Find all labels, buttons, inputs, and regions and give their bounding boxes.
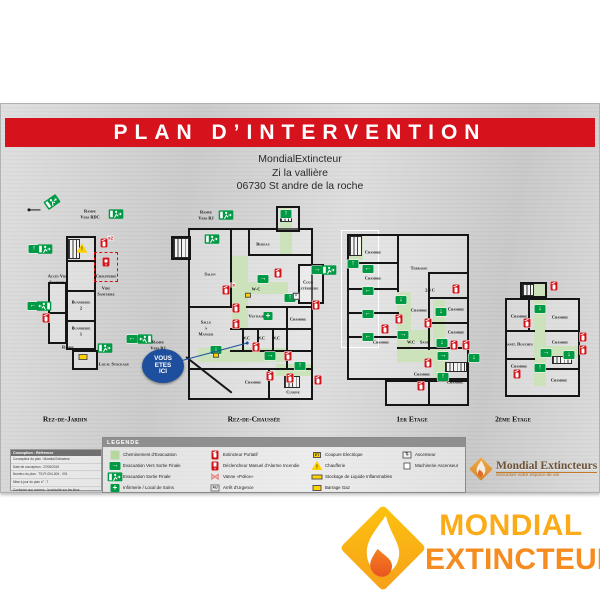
legend-item: Extincteur Portatif [207,449,300,460]
exit-arrow-sign-icon: ↓ [396,296,407,304]
site-address: MondialExtincteur Zi la vallière 06730 S… [0,153,600,194]
room-label: Rampe [152,340,164,345]
police-valve-icon: ⋈ [211,471,220,482]
floor-plan-2eme-etage: ChambreChambreChambreSanit. DouchesChamb… [470,238,595,414]
legend-item: Evacuation Sortie Finale [107,471,181,482]
brand-footer: MONDIAL EXTINCTEUR [0,495,600,600]
room-label: Rampe [200,210,212,215]
stairs [445,362,467,372]
inner-wall [545,368,580,370]
legend-item: AUArrêt d'Urgence [207,482,300,493]
legend-item-label: Ascenseur [415,452,436,457]
legend-title: LEGENDE [103,438,465,447]
metal-plate: PLAN D’INTERVENTION MondialExtincteur Zi… [0,103,600,493]
extinguisher-icon [463,341,470,350]
room-walls [72,350,98,370]
exit-arrow-sign-icon: ← [127,335,138,343]
exit-arrow-sign-icon: → [541,349,552,357]
first-aid-icon: + [264,312,273,320]
legend-column: ETCoupure Electrique!ChaufferieStockage … [309,449,392,493]
floor-plan-rez-de-chaussee: RampeVers RJBureauSalonW-CCourExtérieure… [168,198,336,410]
inner-wall [545,330,580,332]
room-label: W.C [242,336,250,341]
count-badge: x2 [108,236,114,241]
extinguisher-icon [313,301,320,310]
room-label: W.C [272,336,280,341]
extinguisher-icon [514,370,521,379]
legend: LEGENDE Cheminement d'Evacuation→Evacuat… [102,437,466,493]
inner-wall [428,272,430,350]
room-label: Chambre [373,340,390,345]
extinguisher-icon: 2x [223,286,230,295]
legend-icon-wrap [107,471,123,482]
fire-alarm-call-point-icon [212,461,219,470]
legend-item-label: Cheminement d'Evacuation [123,452,177,457]
access-point-icon [30,209,41,210]
floor-caption-1er-etage: 1er Etage [396,415,427,424]
extinguisher-icon [285,352,292,361]
legend-item-label: Barrage Gaz [325,485,350,490]
room-label: Vide [102,286,110,291]
brand-flame-diamond-icon [338,503,428,593]
extinguisher-icon [233,320,240,329]
plate-maker-name: Mondial Extincteurs [496,460,597,472]
conception-info-line: Conforme aux normes : la sécurité sur le… [11,487,101,495]
inner-wall [66,320,96,322]
police-valve-window-icon: × [293,293,300,300]
legend-item: +Infirmerie / Local de Soins [107,482,181,493]
inner-wall [428,297,469,299]
emergency-exit-sign-icon [108,472,123,482]
evacuation-path-icon [111,450,120,459]
first-aid-icon: + [111,484,120,492]
legend-item-label: Déclencheur Manuel d'Alarme Incendie [223,463,300,468]
room-label: Chambre [290,317,307,322]
room-label: Buanderie [72,300,91,305]
legend-column: Extincteur PortatifDéclencheur Manuel d'… [207,449,300,493]
emergency-exit-sign-icon [109,209,124,219]
extinguisher-icon [396,315,403,324]
legend-icon-wrap: ⇅ [399,449,415,460]
exit-arrow-sign-icon: ↓ [437,339,448,347]
emergency-exit-sign-icon [37,301,52,311]
room-label: Sanitaire [49,280,66,285]
legend-item: ETCoupure Electrique [309,449,392,460]
exit-arrow-sign-icon: ↓ [564,351,575,359]
room-label: Vers RJ [198,216,213,221]
legend-item: Stockage de Liquide Inflammables [309,471,392,482]
legend-item-label: Stockage de Liquide Inflammables [325,474,392,479]
conception-info-line: Date de conception : 27/06/2019 [11,464,101,472]
extinguisher-icon [267,372,274,381]
brand-name-line1: MONDIAL [425,509,597,543]
exit-arrow-sign-icon: ↑ [295,362,306,370]
emergency-exit-sign-icon [205,234,220,244]
hazard-triangle-icon: ! [312,461,323,471]
legend-item: Barrage Gaz [309,482,392,493]
inner-wall [246,306,313,308]
room-label: W.C [407,340,415,345]
extinguisher-icon [580,333,587,342]
gas-barrier-icon [313,485,322,491]
exit-right-icon: → [110,462,121,470]
extinguisher-icon [451,341,458,350]
flammable-storage-icon [312,474,323,479]
room-label: Local Stockage [99,362,129,367]
exit-arrow-sign-icon: → [265,352,276,360]
room-label: Chambre [365,276,382,281]
legend-icon-wrap [107,449,123,460]
inner-wall [188,306,232,308]
extinguisher-icon [453,285,460,294]
conception-info-box: Conception : Référence Concepteur du pla… [10,449,102,491]
stairs [349,236,362,256]
legend-item-label: Evacuation Sortie Finale [123,474,171,479]
legend-item-label: Evacuation Vers Sortie Finale [123,463,181,468]
legend-item: ⇅Ascenseur [399,449,458,460]
floor-caption-2eme-etage: 2ème Etage [495,415,531,424]
address-line-2: Zi la vallière [0,167,600,181]
conception-info-line: Mise à jour du plan n° : 7 [11,479,101,487]
extinguisher-icon [425,359,432,368]
room-label: Salle [201,320,212,325]
room-label: Manger [199,332,214,337]
inner-wall [428,272,469,274]
exit-arrow-sign-icon: ↓ [436,308,447,316]
room-label: Chambre [448,307,465,312]
extinguisher-icon [315,376,322,385]
legend-item: !Chaufferie [309,460,392,471]
address-line-3: 06730 St andre de la roche [0,180,600,194]
elevator-icon: ⇅ [403,451,412,458]
inner-wall [66,290,96,292]
extinguisher-icon [382,325,389,334]
room-label: Chambre [447,380,464,385]
gas-barrier-icon [79,354,88,360]
inner-wall [248,228,250,256]
room-label: Chambre [245,380,262,385]
legend-icon-wrap [207,449,223,460]
room-label: Sanit [420,340,430,345]
legend-item-label: Vanne «Police» [223,474,253,479]
room-label: Chambre [552,315,569,320]
room-label: Accès Vide [48,274,69,279]
room-label: Extérieure [298,286,319,291]
conception-info-lines: Concepteur du plan : Mondial ExtincteurD… [11,456,101,495]
room-label: W.C [257,336,265,341]
exit-arrow-sign-icon: → [438,352,449,360]
plate-maker-tagline: Sécuriser votre espace de vie [496,472,597,479]
legend-item: ⋈Vanne «Police» [207,471,300,482]
elevator-machinery-icon [404,462,411,469]
legend-column: ⇅AscenseurMachinerie Ascenseur [399,449,458,471]
room-label: Chambre [448,330,465,335]
exit-arrow-sign-icon: ↓ [535,305,546,313]
exit-arrow-sign-icon: ↑ [281,210,292,218]
legend-item-label: Machinerie Ascenseur [415,463,458,468]
count-badge: 2x [230,283,236,288]
exit-arrow-sign-icon: → [398,331,409,339]
fire-alarm-call-point-icon [103,258,110,267]
you-are-here-label: VOUS ETES ICI [152,356,174,376]
exit-arrow-sign-icon: → [258,275,269,283]
inner-wall [505,330,535,332]
conception-info-line: Numéro du plan : TS-PI-004-004 - V01 [11,471,101,479]
emergency-exit-sign-icon [38,244,53,254]
inner-wall [397,347,469,349]
legend-icon-wrap: + [107,482,123,493]
room-label: Cour [303,280,313,285]
inner-wall [397,234,399,292]
room-label: Chaufferie [96,274,117,279]
stairs [173,238,189,258]
extinguisher-icon: x2 [101,239,108,248]
flame-diamond-icon [468,456,494,482]
legend-icon-wrap: → [107,460,123,471]
extinguisher-icon [43,314,50,323]
legend-columns: Cheminement d'Evacuation→Evacuation Vers… [103,447,465,493]
legend-item: →Evacuation Vers Sortie Finale [107,460,181,471]
room-label: 2 [80,306,82,311]
extinguisher-icon [418,382,425,391]
floor-caption-rez-de-jardin: Rez-de-Jardin [43,415,87,424]
legend-item-label: Extincteur Portatif [223,452,258,457]
room-label: Sanitaire [97,292,114,297]
extinguisher-icon [551,282,558,291]
room-label: Terrasse [411,266,428,271]
emergency-stop-icon: AU [211,484,220,491]
extinguisher-icon [275,269,282,278]
inner-wall [505,358,535,360]
room-label: Cuisine [286,390,299,395]
room-label: à [205,326,207,331]
extinguisher-icon [253,343,260,352]
room-label: Chambre [511,364,528,369]
legend-icon-wrap: ! [309,460,325,471]
emergency-exit-sign-icon [43,194,61,210]
room-label: Bureau [256,242,270,247]
exit-arrow-sign-icon: ← [363,287,374,295]
extinguisher-icon [287,374,294,383]
floor-caption-rez-de-chaussee: Rez-de-Chaussée [228,415,281,424]
legend-icon-wrap [399,460,415,471]
extinguisher-icon [425,319,432,328]
inner-wall [428,322,469,324]
legend-icon-wrap [207,460,223,471]
room-label: Vers RDC [80,215,99,220]
conception-info-line: Concepteur du plan : Mondial Extincteur [11,456,101,464]
room-label: Buanderie [72,326,91,331]
legend-icon-wrap: ET [309,449,325,460]
floor-plan-1er-etage: ChambreTerrasseChambreChambreChambre2/4 … [333,212,483,412]
plate-maker-logo: Mondial Extincteurs Sécuriser votre espa… [468,451,596,487]
legend-icon-wrap [309,482,325,493]
room-label: W-C [252,287,261,292]
emergency-exit-sign-icon [138,334,153,344]
inner-wall [48,312,67,314]
emergency-exit-sign-icon [98,343,113,353]
room-label: Sanit. Douches [505,342,533,347]
legend-item: Cheminement d'Evacuation [107,449,181,460]
legend-icon-wrap: ⋈ [207,471,223,482]
address-line-1: MondialExtincteur [0,153,600,167]
gas-valve-icon [245,293,251,298]
room-label: Chambre [552,340,569,345]
legend-item: Déclencheur Manuel d'Alarme Incendie [207,460,300,471]
legend-icon-wrap [309,471,325,482]
extinguisher-icon [212,450,219,459]
legend-icon-wrap: AU [207,482,223,493]
legend-item: Machinerie Ascenseur [399,460,458,471]
room-label: Salon [204,272,215,277]
legend-column: Cheminement d'Evacuation→Evacuation Vers… [107,449,181,493]
inner-wall [248,254,313,256]
brand-name-line2: EXTINCTEUR [425,543,597,577]
exit-arrow-sign-icon: ← [363,310,374,318]
inner-wall [230,228,232,306]
legend-item-label: Arrêt d'Urgence [223,485,254,490]
page-title: PLAN D’INTERVENTION [114,121,487,145]
room-label: 2/4 C [425,288,435,293]
extinguisher-icon [233,304,240,313]
legend-item-label: Infirmerie / Local de Soins [123,485,174,490]
room-label: Rampe [62,345,74,350]
room-label: Rampe [84,209,96,214]
title-banner: PLAN D’INTERVENTION [5,118,595,147]
exit-arrow-sign-icon: ↑ [438,373,449,381]
room-label: Chambre [414,372,431,377]
gas-valve-icon [213,353,219,358]
extinguisher-icon [580,346,587,355]
room-label: Chambre [365,250,382,255]
power-cut-icon: ET [313,452,321,458]
exit-arrow-sign-icon: ← [363,265,374,273]
inner-wall [66,260,96,262]
exit-arrow-sign-icon: ← [363,333,374,341]
legend-item-label: Coupure Electrique [325,452,363,457]
emergency-exit-sign-icon [219,210,234,220]
you-are-here-badge: VOUS ETES ICI [142,349,184,383]
exit-arrow-sign-icon: ↑ [348,260,359,268]
inner-wall [428,380,430,406]
exit-arrow-sign-icon: ↑ [535,364,546,372]
extinguisher-icon [524,319,531,328]
intervention-plan-poster: PLAN D’INTERVENTION MondialExtincteur Zi… [0,0,600,600]
room-label: Chambre [551,378,568,383]
room-label: 1 [80,332,82,337]
room-label: Chambre [411,308,428,313]
legend-item-label: Chaufferie [325,463,345,468]
stairs [68,239,80,259]
stairs [522,284,534,296]
